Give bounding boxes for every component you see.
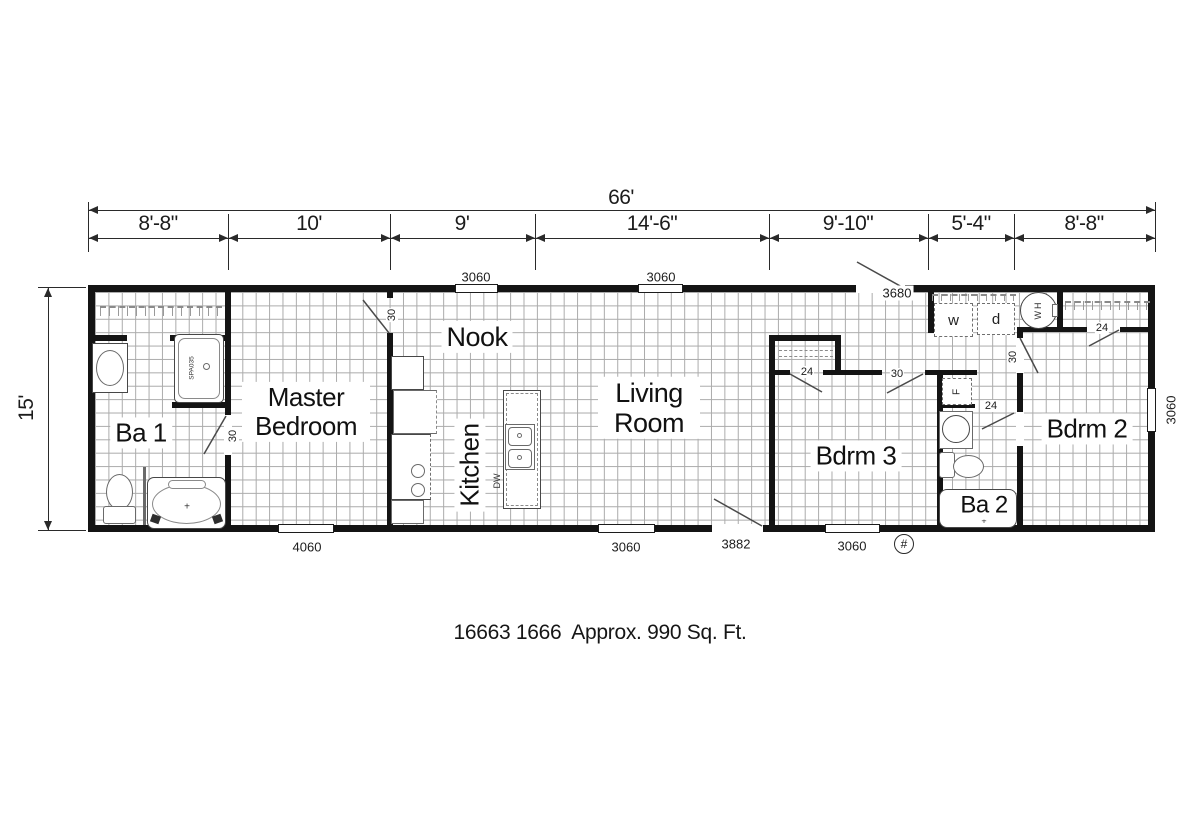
door-size-label-front: 3882 xyxy=(722,537,751,552)
water-heater-label: WH xyxy=(1033,301,1043,320)
dimension-arrow xyxy=(1146,206,1155,214)
kitchen-counter xyxy=(393,390,437,434)
window-size-label: 3060 xyxy=(462,270,491,285)
shower-model-label: SPA035 xyxy=(189,356,196,379)
dishwasher-label: DW xyxy=(492,474,502,489)
wall xyxy=(925,370,937,375)
dryer: d xyxy=(977,303,1015,335)
depth-dimension-line xyxy=(48,288,49,530)
door-size-label-rear: 3680 xyxy=(881,286,914,301)
sink-drain xyxy=(517,433,522,438)
door-size-label: 24 xyxy=(984,400,998,412)
dimension-arrow xyxy=(760,234,769,242)
dimension-arrow xyxy=(219,234,228,242)
sink-drain xyxy=(517,455,522,460)
wall xyxy=(1120,327,1155,332)
floor-plan-canvas: 66' 8'-8" 10' 9' 14'-6" 9'-10" 5'-4" 8'-… xyxy=(0,0,1200,818)
segment-dim-label: 8'-8" xyxy=(138,212,177,236)
window-bottom-bdrm3 xyxy=(825,524,880,533)
dimension-arrow xyxy=(526,234,535,242)
door-size-label: 24 xyxy=(1095,322,1109,334)
wall xyxy=(1017,373,1023,412)
door-gap-ba2 xyxy=(1016,412,1024,446)
wall xyxy=(225,292,231,415)
wall xyxy=(95,335,127,341)
dimension-tick xyxy=(1014,214,1015,270)
window-size-label: 3060 xyxy=(647,270,676,285)
dimension-tick xyxy=(38,530,86,531)
kitchen-counter-lower xyxy=(391,500,424,524)
dimension-tick xyxy=(535,214,536,270)
wall xyxy=(387,292,393,298)
dimension-tick xyxy=(228,214,229,270)
window-top-living xyxy=(638,284,683,293)
room-label-ba2: Ba 2 xyxy=(956,493,1011,520)
dimension-tick xyxy=(390,214,391,270)
ba1-toilet-bowl xyxy=(106,474,133,510)
wall xyxy=(1017,446,1023,525)
shower-drain xyxy=(203,363,210,370)
dimension-arrow xyxy=(929,234,938,242)
dimension-arrow xyxy=(89,234,98,242)
furnace: F xyxy=(942,378,972,405)
ba2-toilet-bowl xyxy=(953,455,984,478)
dimension-tick xyxy=(928,214,929,270)
ba1-bathtub-headrest xyxy=(168,480,206,489)
dimension-arrow xyxy=(1005,234,1014,242)
room-label-kitchen: Kitchen xyxy=(454,418,485,511)
door-size-label: 30 xyxy=(386,308,398,322)
utility-shelf xyxy=(932,294,1016,301)
room-label-bdrm2: Bdrm 2 xyxy=(1042,413,1133,444)
bdrm3-closet-shelf xyxy=(779,350,833,357)
dimension-tick xyxy=(1155,202,1156,252)
dimension-arrow xyxy=(44,288,52,297)
plan-caption: 16663 1666 Approx. 990 Sq. Ft. xyxy=(453,621,746,645)
ba1-sink xyxy=(96,350,124,386)
overall-width-label: 66' xyxy=(608,186,634,210)
door-size-label: 30 xyxy=(227,429,239,443)
segment-dim-label: 8'-8" xyxy=(1064,212,1103,236)
refrigerator xyxy=(391,356,424,390)
dimension-arrow xyxy=(919,234,928,242)
window-top-nook xyxy=(455,284,498,293)
wall xyxy=(1017,327,1087,332)
washer: w xyxy=(934,303,973,337)
wall xyxy=(769,335,841,341)
ba1-tub-drain: + xyxy=(184,502,190,513)
overall-depth-label: 15' xyxy=(15,395,39,421)
door-size-label: 30 xyxy=(1007,350,1019,364)
dimension-arrow xyxy=(229,234,238,242)
room-label-nook: Nook xyxy=(441,321,512,353)
ba1-partition xyxy=(143,467,146,525)
segment-dim-label: 9' xyxy=(455,212,470,236)
wall xyxy=(835,335,841,375)
window-size-label: 3060 xyxy=(838,539,867,554)
dimension-arrow xyxy=(770,234,779,242)
ba1-closet-rod xyxy=(100,306,222,316)
ba1-toilet-tank xyxy=(103,506,136,524)
bdrm2-closet-rod xyxy=(1065,301,1150,310)
window-bottom-living xyxy=(598,524,655,533)
segment-dim-label: 14'-6" xyxy=(627,212,678,236)
wall xyxy=(937,370,977,375)
dimension-arrow xyxy=(391,234,400,242)
dimension-arrow xyxy=(1146,234,1155,242)
ba1-shower-inner xyxy=(178,338,220,399)
segment-dimension-line xyxy=(88,238,1155,239)
overall-width-dimension-line xyxy=(88,210,1155,211)
segment-dim-label: 9'-10" xyxy=(823,212,874,236)
window-size-label: 3060 xyxy=(612,540,641,555)
wall xyxy=(823,370,882,375)
door-size-label: 24 xyxy=(800,366,814,378)
segment-dim-label: 10' xyxy=(296,212,322,236)
wall xyxy=(88,285,1155,292)
window-size-label: 3060 xyxy=(1164,396,1179,425)
window-bottom-master xyxy=(278,524,334,533)
ba2-sink xyxy=(942,415,970,443)
dimension-arrow xyxy=(381,234,390,242)
window-size-label: 4060 xyxy=(293,540,322,555)
wall xyxy=(769,335,775,525)
dimension-arrow xyxy=(44,521,52,530)
room-label-master-bedroom: Master Bedroom xyxy=(242,382,370,442)
door-size-label: 30 xyxy=(890,368,904,380)
furnace-label: F xyxy=(952,388,963,394)
range-burner xyxy=(411,464,425,478)
utility-marker-circle: # xyxy=(894,534,914,554)
dimension-tick xyxy=(769,214,770,270)
door-gap-front-entry xyxy=(712,524,763,533)
dimension-arrow xyxy=(89,206,98,214)
utility-marker: # xyxy=(901,537,908,551)
segment-dim-label: 5'-4" xyxy=(951,212,990,236)
water-heater-mount xyxy=(1052,304,1058,317)
range-burner xyxy=(411,483,425,497)
dimension-tick xyxy=(88,202,89,252)
dimension-arrow xyxy=(1015,234,1024,242)
room-label-living-room: Living Room xyxy=(598,377,700,439)
wall xyxy=(88,285,95,532)
window-right-bdrm2 xyxy=(1147,388,1156,432)
dimension-arrow xyxy=(536,234,545,242)
room-label-ba1: Ba 1 xyxy=(110,417,172,448)
wall xyxy=(775,370,790,375)
room-label-bdrm3: Bdrm 3 xyxy=(811,440,902,471)
